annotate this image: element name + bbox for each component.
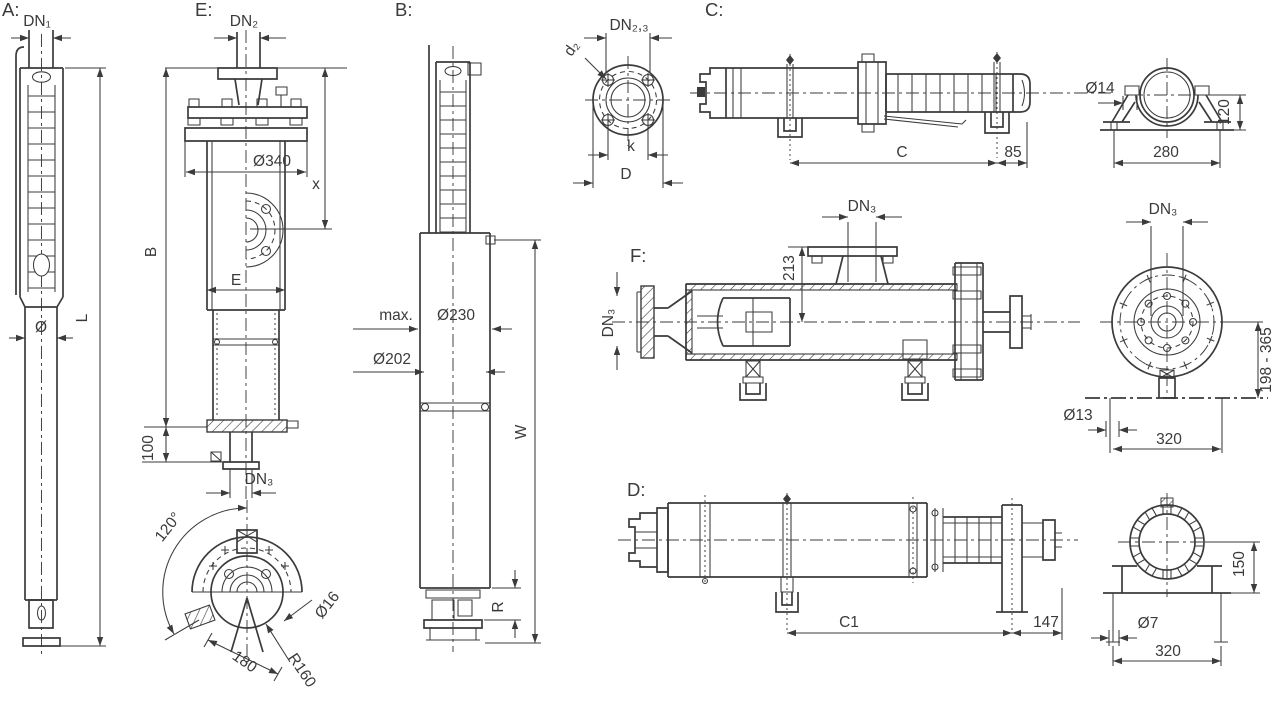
dim-k-label: k: [627, 138, 635, 155]
dim-d13-label: Ø13: [1063, 407, 1092, 424]
view-e-label: E:: [195, 0, 212, 20]
dim-320-f-label: 320: [1156, 431, 1182, 448]
dim-dia: Ø: [9, 319, 73, 338]
view-b-label: B:: [395, 0, 412, 20]
dim-b: B: [143, 68, 166, 427]
view-d: D: C1 147: [618, 479, 1078, 640]
dim-dn23-label: DN₂,₃: [609, 17, 648, 34]
view-f: F: DN₃ 213: [600, 198, 1080, 400]
dim-c1-label: C1: [839, 614, 859, 631]
dim-150-label: 150: [1231, 551, 1248, 577]
dim-202: Ø202: [353, 351, 505, 372]
dim-flange-dia-label: Ø340: [253, 153, 291, 170]
dim-c-label: C: [896, 144, 907, 161]
dim-150: 150: [1205, 542, 1260, 593]
view-b: B: max. Ø230 Ø202 W R: [353, 0, 541, 652]
dim-d7-label: Ø7: [1138, 615, 1159, 632]
dim-x-label: x: [312, 176, 320, 193]
view-c: C: C 85: [690, 0, 1112, 168]
dim-x: x: [250, 68, 332, 229]
dim-dn1: DN₁: [11, 13, 71, 38]
view-c-end: Ø14 120 280: [1085, 58, 1246, 168]
dim-dn3-top-label: DN₃: [848, 198, 877, 215]
dim-dn3-e-label: DN₃: [245, 471, 274, 488]
view-a: A: DN₁ Ø L: [2, 0, 106, 655]
dim-dn3-fend-label: DN₃: [1149, 201, 1178, 218]
view-e-flange-detail: 120° 180 R160 Ø16: [152, 500, 343, 691]
dim-147: 147: [1012, 588, 1062, 640]
pump-d-outline: [629, 493, 1062, 630]
dim-100-label: 100: [140, 435, 157, 461]
technical-drawing: A: DN₁ Ø L E:: [0, 0, 1280, 703]
dim-e-label: E: [231, 272, 241, 289]
view-f-end: DN₃ 198 - 365 Ø13 320: [1063, 201, 1275, 453]
dim-w: W: [485, 240, 541, 643]
dim-85: 85: [997, 122, 1027, 168]
dim-280-label: 280: [1153, 144, 1179, 161]
dim-120deg-label: 120°: [152, 509, 185, 545]
dim-d16: Ø16: [284, 588, 343, 622]
dim-max-label: max.: [379, 307, 413, 324]
dim-320-d: 320: [1113, 643, 1221, 666]
view-d-end: 150 Ø7 320: [1091, 493, 1260, 666]
dim-180: 180: [204, 633, 282, 681]
dim-d13: Ø13: [1063, 407, 1137, 437]
dim-85-label: 85: [1004, 144, 1021, 161]
dim-120-label: 120: [1216, 99, 1233, 125]
view-d-label: D:: [627, 479, 646, 500]
dim-max-230: max. Ø230: [353, 307, 512, 329]
dim-dn3-side: DN₃: [600, 272, 617, 370]
dim-r160-label: R160: [284, 650, 319, 691]
dim-d2: d₂: [561, 38, 606, 79]
dim-d7: Ø7: [1091, 615, 1158, 646]
dim-dn1-label: DN₁: [23, 13, 51, 30]
view-c-label: C:: [705, 0, 724, 20]
dim-d2-label: d₂: [561, 38, 583, 60]
view-f-label: F:: [630, 245, 646, 266]
dim-length-label: L: [74, 313, 91, 322]
dim-c1: C1: [787, 614, 1012, 633]
dim-147-label: 147: [1033, 614, 1059, 631]
dim-d16-label: Ø16: [312, 588, 343, 622]
dim-c: C: [790, 144, 997, 163]
dim-dn2: DN₂: [214, 13, 286, 38]
dim-r-label: R: [490, 601, 507, 612]
dim-dn2-label: DN₂: [230, 13, 258, 30]
view-a-label: A:: [2, 0, 19, 20]
pump-b-outline: [420, 45, 495, 640]
dim-dia-label: Ø: [35, 319, 47, 336]
dim-d14-label: Ø14: [1085, 80, 1115, 97]
dim-120: 120: [1205, 95, 1246, 130]
dim-dn3-top: DN₃: [822, 198, 902, 282]
dim-213-label: 213: [781, 255, 798, 281]
dim-230-label: Ø230: [437, 307, 475, 324]
dim-202-label: Ø202: [373, 351, 411, 368]
dim-dn3-side-label: DN₃: [600, 309, 617, 338]
view-e: E: DN₂ Ø340 x: [140, 0, 347, 500]
dim-320-f: 320: [1110, 431, 1222, 453]
dim-w-label: W: [513, 424, 530, 439]
dim-320-d-label: 320: [1155, 643, 1181, 660]
dim-range-label: 198 - 365: [1258, 327, 1275, 393]
drawing-canvas: A: DN₁ Ø L E:: [0, 0, 1280, 703]
view-flange-top: DN₂,₃ d₂ k D: [561, 17, 683, 188]
dim-dn3-e: DN₃: [206, 469, 276, 498]
pump-f-outline: [637, 247, 1031, 400]
dim-length: L: [60, 68, 106, 646]
dim-range: 198 - 365: [1224, 322, 1275, 398]
dim-b-label: B: [143, 247, 160, 257]
pump-c-outline: [697, 52, 1030, 160]
dim-dd-label: D: [620, 166, 631, 183]
